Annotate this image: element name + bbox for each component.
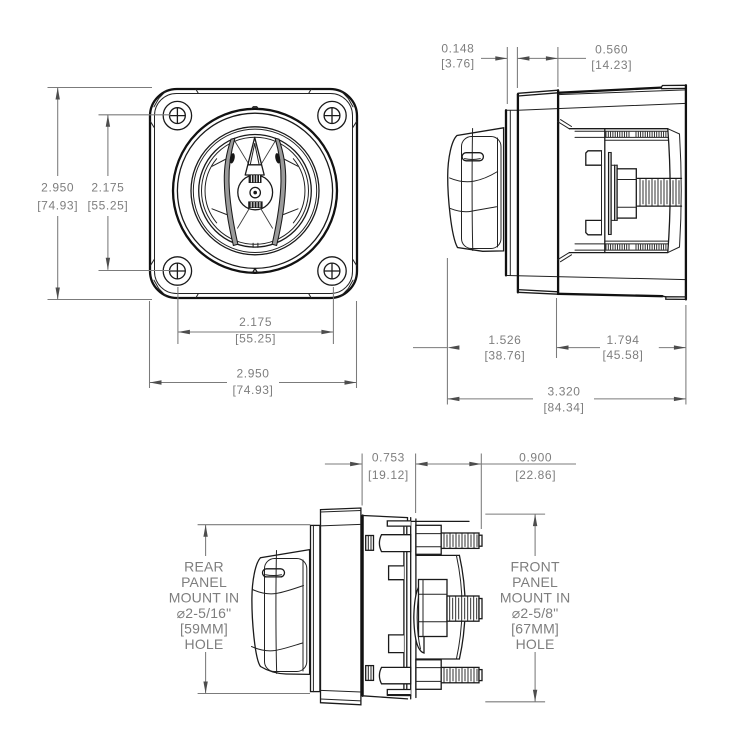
svg-text:[45.58]: [45.58] bbox=[603, 348, 644, 362]
svg-text:[67MM]: [67MM] bbox=[511, 621, 559, 637]
svg-text:HOLE: HOLE bbox=[185, 636, 224, 652]
svg-text:⌀2-5/8": ⌀2-5/8" bbox=[512, 605, 559, 621]
svg-text:2.175: 2.175 bbox=[239, 315, 272, 329]
svg-text:[74.93]: [74.93] bbox=[37, 199, 78, 213]
svg-text:1.794: 1.794 bbox=[606, 333, 639, 347]
svg-text:[22.86]: [22.86] bbox=[515, 468, 556, 482]
svg-text:PANEL: PANEL bbox=[512, 574, 558, 590]
svg-text:0.753: 0.753 bbox=[372, 451, 405, 465]
svg-text:PANEL: PANEL bbox=[181, 574, 227, 590]
svg-text:[84.34]: [84.34] bbox=[544, 400, 585, 414]
svg-text:HOLE: HOLE bbox=[516, 636, 555, 652]
svg-text:[74.93]: [74.93] bbox=[233, 383, 274, 397]
svg-text:[14.23]: [14.23] bbox=[591, 58, 632, 72]
svg-text:[38.76]: [38.76] bbox=[484, 349, 525, 363]
svg-text:0.148: 0.148 bbox=[441, 42, 474, 56]
svg-text:[19.12]: [19.12] bbox=[368, 468, 409, 482]
svg-text:3.320: 3.320 bbox=[547, 385, 580, 399]
svg-text:[59MM]: [59MM] bbox=[180, 621, 228, 637]
svg-text:REAR: REAR bbox=[184, 559, 224, 575]
svg-text:2.175: 2.175 bbox=[91, 181, 124, 195]
svg-text:FRONT: FRONT bbox=[510, 559, 559, 575]
svg-text:[55.25]: [55.25] bbox=[87, 199, 128, 213]
svg-text:1.526: 1.526 bbox=[488, 333, 521, 347]
svg-text:MOUNT IN: MOUNT IN bbox=[500, 590, 571, 606]
svg-text:[55.25]: [55.25] bbox=[235, 332, 276, 346]
svg-text:2.950: 2.950 bbox=[41, 181, 74, 195]
svg-text:[3.76]: [3.76] bbox=[441, 56, 475, 70]
svg-text:0.900: 0.900 bbox=[519, 451, 552, 465]
svg-text:0.560: 0.560 bbox=[595, 43, 628, 57]
svg-text:⌀2-5/16": ⌀2-5/16" bbox=[177, 605, 232, 621]
svg-text:MOUNT IN: MOUNT IN bbox=[169, 590, 240, 606]
svg-text:2.950: 2.950 bbox=[236, 367, 269, 381]
